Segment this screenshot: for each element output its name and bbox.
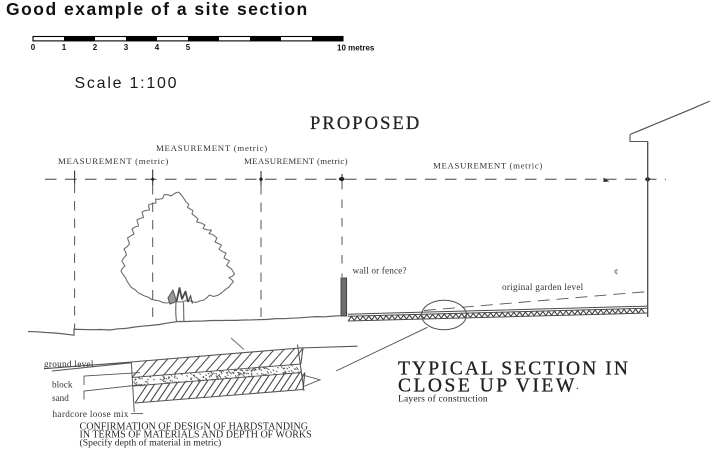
svg-text:¢: ¢	[614, 267, 618, 277]
svg-text:ground level: ground level	[44, 359, 94, 369]
svg-text:0: 0	[31, 43, 36, 52]
svg-text:.: .	[576, 381, 579, 392]
svg-text:MEASUREMENT (metric): MEASUREMENT (metric)	[58, 156, 169, 166]
svg-text:Good example of a site section: Good example of a site section	[6, 0, 309, 19]
svg-text:Layers of construction: Layers of construction	[398, 394, 488, 405]
svg-text:10 metres: 10 metres	[337, 43, 375, 52]
svg-text:1: 1	[62, 43, 67, 52]
svg-text:hardcore loose mix: hardcore loose mix	[53, 409, 129, 419]
svg-text:(Specify depth of material in: (Specify depth of material in metric)	[80, 437, 222, 448]
svg-text:5: 5	[186, 43, 191, 52]
svg-text:MEASUREMENT (metric): MEASUREMENT (metric)	[156, 143, 268, 153]
svg-text:3: 3	[124, 43, 129, 52]
svg-text:original garden level: original garden level	[502, 282, 584, 292]
svg-text:MEASUREMENT (metric): MEASUREMENT (metric)	[433, 160, 543, 170]
svg-text:PROPOSED: PROPOSED	[310, 114, 421, 134]
svg-text:2: 2	[93, 43, 98, 52]
svg-text:Scale 1:100: Scale 1:100	[75, 75, 179, 92]
svg-text:block: block	[52, 379, 73, 389]
svg-text:MEASUREMENT (metric): MEASUREMENT (metric)	[244, 156, 348, 166]
svg-text:wall or fence?: wall or fence?	[353, 266, 407, 276]
svg-text:sand: sand	[52, 393, 69, 403]
svg-text:CLOSE UP VIEW: CLOSE UP VIEW	[398, 375, 577, 396]
svg-text:4: 4	[155, 43, 160, 52]
